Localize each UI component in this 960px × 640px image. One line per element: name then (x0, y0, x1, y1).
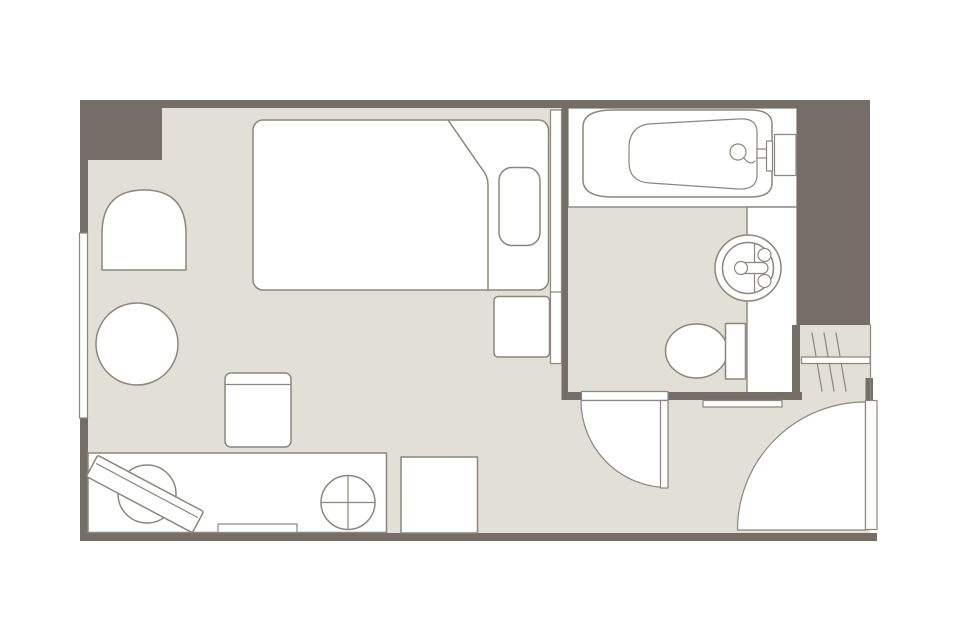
washbasin-knob-hot (758, 249, 771, 262)
toilet-tank (726, 324, 746, 380)
wall-stub-above-entrance (866, 378, 874, 401)
floor-plan-drawing (0, 0, 960, 640)
hotel-floor-plan (0, 0, 960, 640)
hanger-rail (802, 357, 871, 364)
armchair (102, 190, 186, 270)
bath-faucet-bar (767, 141, 773, 171)
keyboard-tray (218, 524, 297, 533)
wall-top (80, 100, 870, 108)
bathroom-door-opening (582, 392, 669, 401)
wall-column-top-left (80, 100, 162, 160)
washbasin-knob-cold (758, 275, 771, 288)
door-threshold (703, 401, 782, 408)
pillow (499, 168, 540, 246)
desk-chair (225, 373, 291, 447)
wall-bathroom-bottom-right (668, 392, 803, 400)
washbasin (715, 235, 781, 301)
nightstand (494, 297, 550, 358)
toilet-bowl (666, 324, 728, 378)
luggage-rack (401, 457, 478, 533)
wall-bottom (80, 533, 877, 541)
bath-faucet-panel (775, 135, 797, 176)
partition-panel (551, 110, 562, 364)
window (80, 233, 88, 418)
wall-bathroom-left (562, 108, 569, 400)
partition-panel-board (551, 110, 562, 364)
wall-bathroom-bottom-left (562, 392, 584, 400)
round-table (96, 303, 178, 385)
toilet (666, 324, 746, 380)
washbasin-faucet-head (735, 262, 748, 275)
bathroom-door-leaf (661, 401, 669, 489)
round-stool (321, 476, 375, 530)
wall-closet-left (792, 325, 800, 400)
wall-block-right (797, 100, 870, 325)
entrance-door-leaf (866, 401, 878, 530)
